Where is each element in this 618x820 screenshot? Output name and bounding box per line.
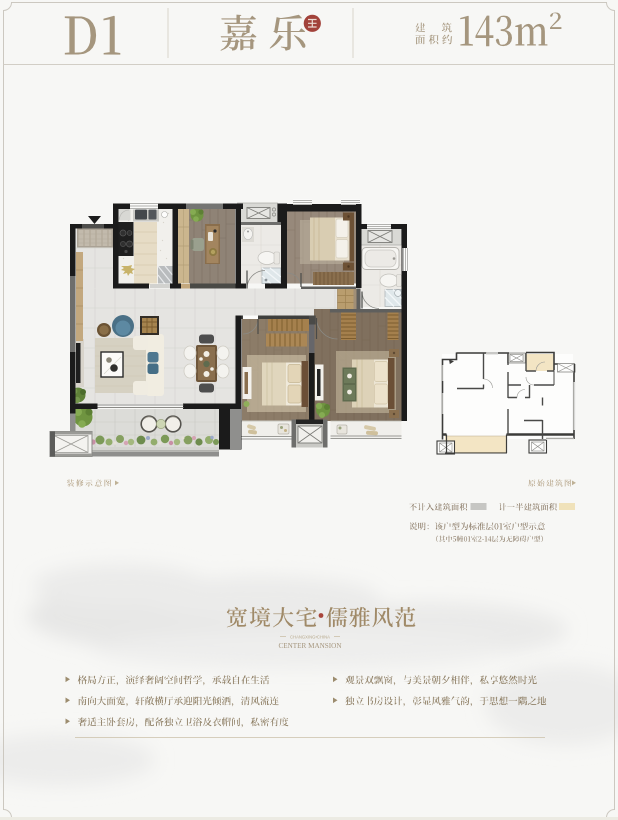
svg-text:CENTER MANSION: CENTER MANSION: [279, 641, 342, 650]
svg-text:CHANGXING•CHINA: CHANGXING•CHINA: [290, 635, 331, 640]
